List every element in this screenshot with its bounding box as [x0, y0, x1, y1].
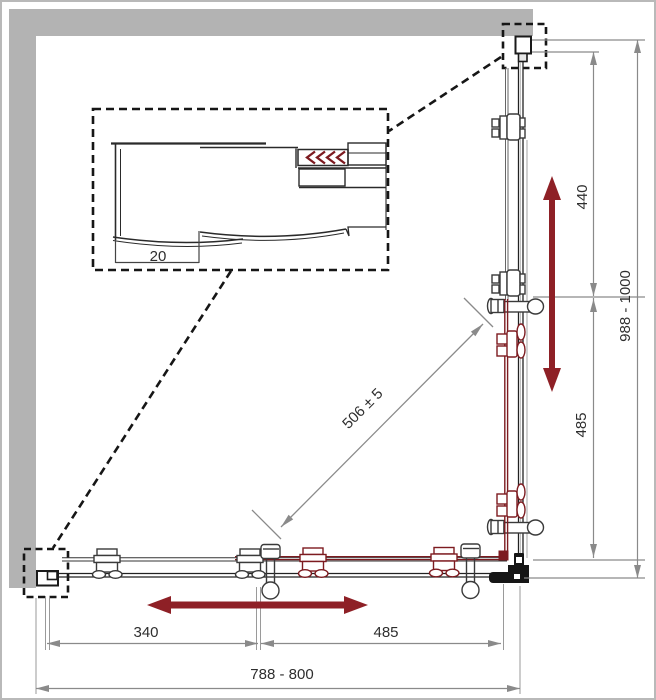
drawing-border: [1, 1, 655, 699]
dim-label-side-upper: 440: [574, 184, 591, 209]
support-bar-lower: [488, 520, 544, 536]
support-bar-upper: [488, 299, 544, 315]
dim-label-total-width: 788 - 800: [250, 666, 313, 683]
top-wall-bracket: [516, 37, 532, 54]
bottom-wall-bracket-clip: [48, 572, 58, 580]
dim-label-profile-adjustment: 20: [150, 248, 167, 265]
installation-drawing: 20: [0, 0, 656, 700]
door-rail-elbow: [499, 551, 508, 560]
dim-label-side-range: 988 - 1000: [617, 270, 634, 342]
drawing-svg: 20: [0, 0, 656, 700]
dim-label-bottom-door: 485: [373, 624, 398, 641]
top-wall-bracket-clip: [519, 54, 528, 62]
dim-label-side-lower: 485: [573, 412, 590, 437]
dim-label-bottom-fixed: 340: [133, 624, 158, 641]
